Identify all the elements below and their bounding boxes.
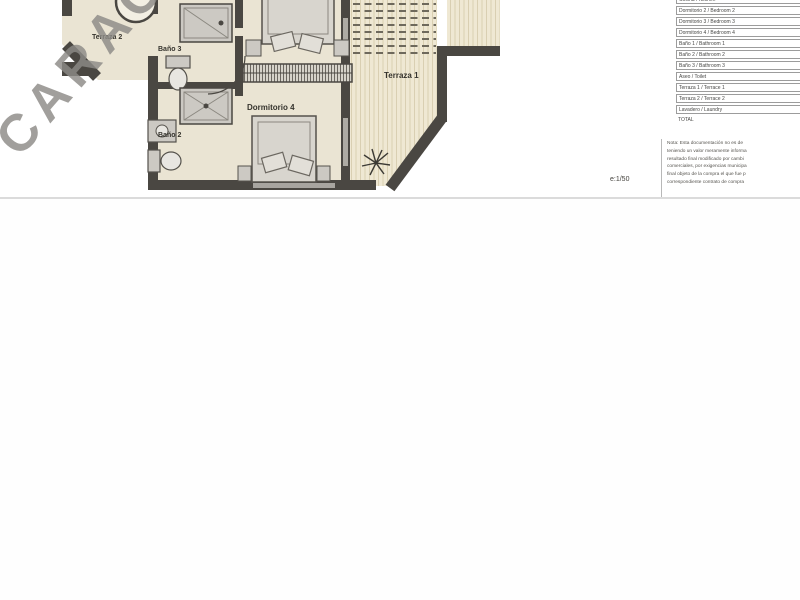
legend-row: Cocina / Kitchen [676,0,800,4]
legend-row-total: TOTAL [676,116,800,125]
wardrobe-closet [243,64,352,82]
legend-row: Lavadero / Laundry [676,105,800,114]
label-dormitorio4: Dormitorio 4 [247,103,295,112]
bed-dormitorio4 [238,116,330,182]
legend-row: Baño 1 / Bathroom 1 [676,39,800,48]
floor-plan-page: Terraza 1 Terraza 2 Dormitorio 4 Baño 3 … [0,0,800,600]
blank-page-area [0,199,800,600]
legend-row: Terraza 2 / Terrace 2 [676,94,800,103]
shower-bano2 [180,88,232,124]
legend-row: Terraza 1 / Terrace 1 [676,83,800,92]
legend-row: Baño 2 / Bathroom 2 [676,50,800,59]
note-line: correspondiente contrato de compra [667,179,800,187]
notes-divider-line [661,139,662,197]
legend-row: Dormitorio 2 / Bedroom 2 [676,6,800,15]
label-bano3: Baño 3 [158,46,181,53]
legend-row: Aseo / Toilet [676,72,800,81]
note-line: final objeto de la compra el que fue p [667,171,800,179]
legend-row: Baño 3 / Bathroom 3 [676,61,800,70]
note-line: Nota: Esta documentación no es de [667,140,800,148]
legend-row: Dormitorio 3 / Bedroom 3 [676,17,800,26]
label-bano2: Baño 2 [158,132,181,139]
scale-label: e:1/50 [610,176,629,183]
surface-legend-table: Cocina / Kitchen Dormitorio 2 / Bedroom … [676,0,800,127]
shower-bano3 [180,4,232,42]
note-line: comerciales, por exigencias municipa [667,163,800,171]
note-line: teniendo un valor meramente informa [667,148,800,156]
disclaimer-notes: Nota: Esta documentación no es de tenien… [667,140,800,187]
label-terraza1: Terraza 1 [384,71,419,80]
legend-row: Dormitorio 4 / Bedroom 4 [676,28,800,37]
note-line: resultado final modificado por cambi [667,156,800,164]
